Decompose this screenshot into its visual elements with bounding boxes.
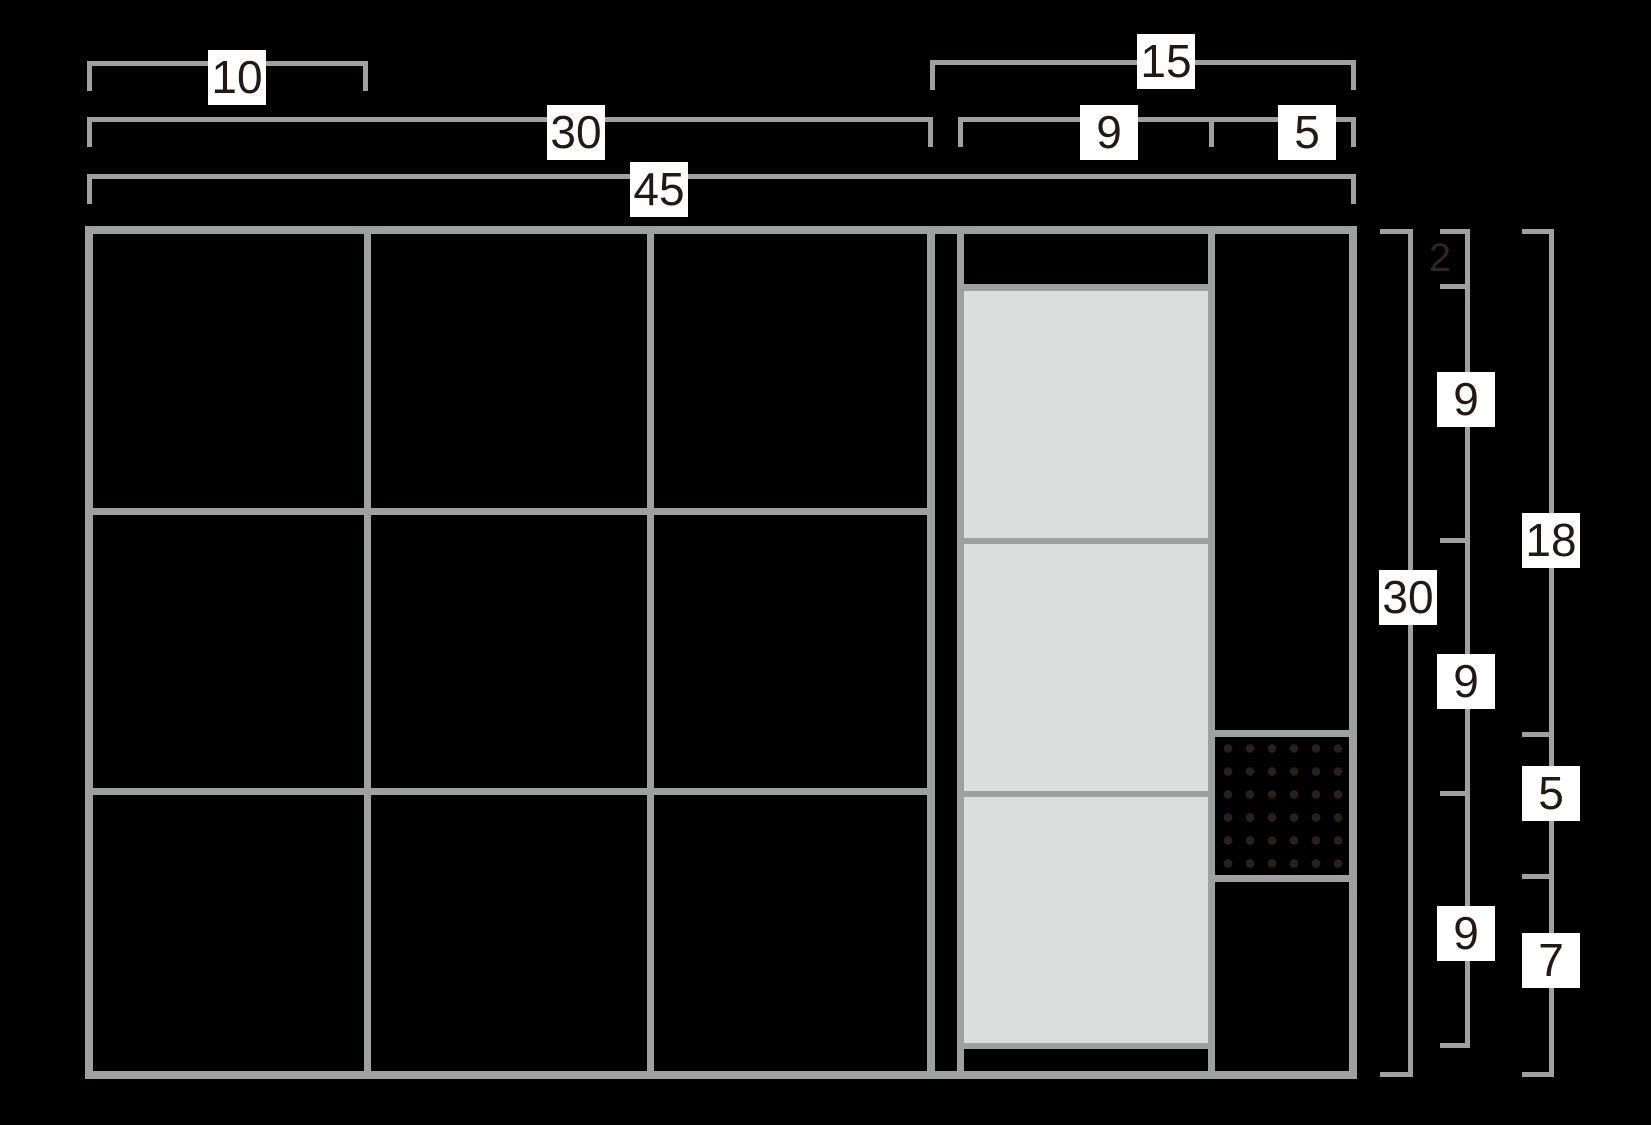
panel-bay-divider — [1208, 234, 1215, 1071]
dim-label-overall-height: 30 — [1379, 570, 1437, 625]
dim-label-overall-width: 45 — [630, 162, 688, 217]
dim-label-panel-height-c: 9 — [1437, 906, 1495, 961]
dim-right-section-arm-right — [1351, 60, 1356, 90]
partition-wall-left — [927, 234, 935, 1071]
dim-bay-width-arm-right — [363, 61, 368, 91]
dim-bay-width-arm-left — [87, 61, 92, 91]
dim-label-panel-height-b: 9 — [1437, 654, 1495, 709]
dim-panel-chain-tick-3 — [1440, 791, 1465, 796]
row-divider-1 — [93, 508, 927, 515]
dim-panel-chain-tick-2 — [1440, 538, 1465, 543]
dim-label-lower-side-height: 7 — [1522, 933, 1580, 988]
dim-panel-side-arm-left — [958, 117, 963, 147]
dim-label-panel-bay-width: 9 — [1080, 105, 1138, 160]
vent-bottom-line — [1215, 875, 1349, 882]
dim-side-chain-tick-2 — [1522, 874, 1549, 879]
dim-panel-chain-tick-1 — [1440, 284, 1465, 289]
partition-wall-right — [957, 234, 964, 1071]
dim-left-section-arm-right — [928, 117, 933, 147]
panel-bottom-line — [964, 1043, 1208, 1049]
row-divider-2 — [93, 788, 927, 795]
dim-overall-width-arm-right — [1351, 174, 1356, 204]
dim-overall-height-arm-bottom — [1380, 1072, 1408, 1077]
dim-label-right-section-width: 15 — [1137, 34, 1195, 89]
dim-label-top-rail-height: 2 — [1416, 234, 1464, 282]
dim-overall-width-arm-left — [87, 174, 92, 204]
dim-panel-side-arm-mid — [1209, 117, 1214, 147]
dim-overall-height-line — [1408, 229, 1413, 1077]
vent-top-line — [1215, 730, 1349, 737]
dim-left-section-line — [87, 117, 933, 122]
dim-right-section-arm-left — [930, 60, 935, 90]
diagram-canvas: 10 30 45 15 9 5 30 2 9 9 9 18 5 7 — [0, 0, 1651, 1125]
dim-label-upper-side-height: 18 — [1522, 513, 1580, 568]
dim-left-section-arm-left — [87, 117, 92, 147]
dim-overall-height-arm-top — [1380, 229, 1408, 234]
panel-2 — [964, 544, 1208, 791]
dim-overall-width-line — [87, 174, 1356, 179]
dim-side-chain-tick-0 — [1522, 229, 1549, 234]
top-rail-line — [964, 284, 1208, 291]
dim-label-vent-height: 5 — [1522, 766, 1580, 821]
panel-1 — [964, 291, 1208, 538]
dim-label-side-bay-width: 5 — [1278, 105, 1336, 160]
dim-side-chain-tick-3 — [1522, 1072, 1549, 1077]
dim-panel-chain-tick-4 — [1440, 1043, 1465, 1048]
dim-label-panel-height-a: 9 — [1437, 372, 1495, 427]
dim-side-chain-tick-1 — [1522, 732, 1549, 737]
dim-label-bay-width: 10 — [208, 50, 266, 105]
dim-label-left-section-width: 30 — [547, 105, 605, 160]
vent-dot-grid — [1217, 737, 1349, 875]
dim-panel-side-arm-right — [1351, 117, 1356, 147]
panel-3 — [964, 797, 1208, 1043]
column-divider-2 — [647, 234, 654, 1071]
column-divider-1 — [364, 234, 371, 1071]
